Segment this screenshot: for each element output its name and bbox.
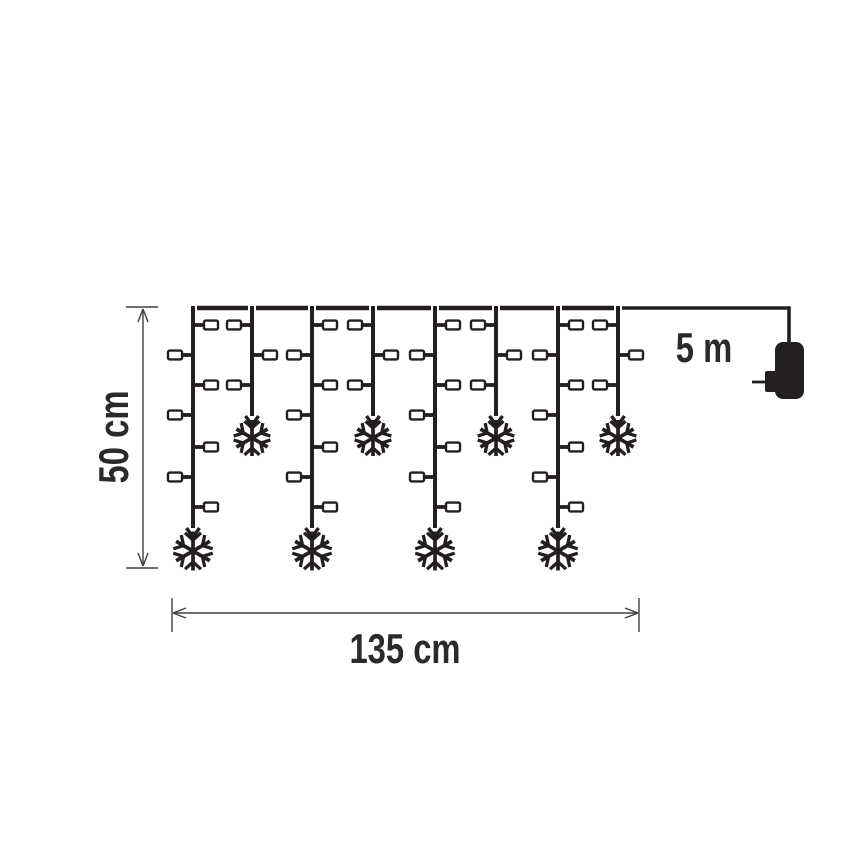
snowflake-icon: [292, 532, 333, 571]
light-drop-short: [471, 306, 521, 456]
height-dimension-label: 50 cm: [93, 391, 135, 484]
power-plug-icon: [752, 342, 804, 399]
bulb: [533, 473, 558, 482]
bulb: [435, 503, 460, 512]
bulb: [410, 473, 435, 482]
bulb: [593, 381, 618, 390]
bulb: [312, 321, 337, 330]
bulb: [533, 411, 558, 420]
bulb: [618, 351, 643, 360]
light-drop-short: [227, 306, 277, 456]
bulb: [348, 381, 373, 390]
bulb: [168, 473, 193, 482]
bulb: [227, 321, 252, 330]
bulb: [168, 411, 193, 420]
bulb: [533, 351, 558, 360]
bulb: [496, 351, 521, 360]
lead-length-label: 5 m: [676, 327, 732, 369]
bulb: [312, 443, 337, 452]
bulb: [193, 321, 218, 330]
product-dimension-diagram: 50 cm 135 cm 5 m: [0, 0, 868, 868]
bulb: [410, 351, 435, 360]
bulb: [348, 321, 373, 330]
light-drop-long: [168, 306, 218, 571]
bulb: [558, 503, 583, 512]
light-drop-long: [533, 306, 583, 571]
bulb: [287, 473, 312, 482]
light-drop-short: [593, 306, 643, 456]
bulb: [312, 381, 337, 390]
bulb: [252, 351, 277, 360]
bulb: [168, 351, 193, 360]
bulb: [471, 321, 496, 330]
bulb: [373, 351, 398, 360]
snowflake-icon: [415, 532, 456, 571]
snowflake-icon: [233, 420, 270, 456]
bulb: [435, 381, 460, 390]
bulb: [435, 443, 460, 452]
bulb: [558, 443, 583, 452]
bulb: [287, 351, 312, 360]
bulb: [193, 381, 218, 390]
bulb: [558, 321, 583, 330]
light-drop-short: [348, 306, 398, 456]
bulb: [193, 443, 218, 452]
bulb: [471, 381, 496, 390]
bulb: [558, 381, 583, 390]
snowflake-icon: [477, 420, 514, 456]
bulb: [410, 411, 435, 420]
width-dimension-label: 135 cm: [349, 628, 460, 670]
light-drop-long: [287, 306, 337, 571]
bulb: [287, 411, 312, 420]
snowflake-icon: [354, 420, 391, 456]
snowflake-icon: [599, 420, 636, 456]
light-drop-long: [410, 306, 460, 571]
bulb: [435, 321, 460, 330]
snowflake-icon: [173, 532, 214, 571]
bulb: [312, 503, 337, 512]
snowflake-icon: [538, 532, 579, 571]
bulb: [193, 503, 218, 512]
bulb: [593, 321, 618, 330]
bulb: [227, 381, 252, 390]
